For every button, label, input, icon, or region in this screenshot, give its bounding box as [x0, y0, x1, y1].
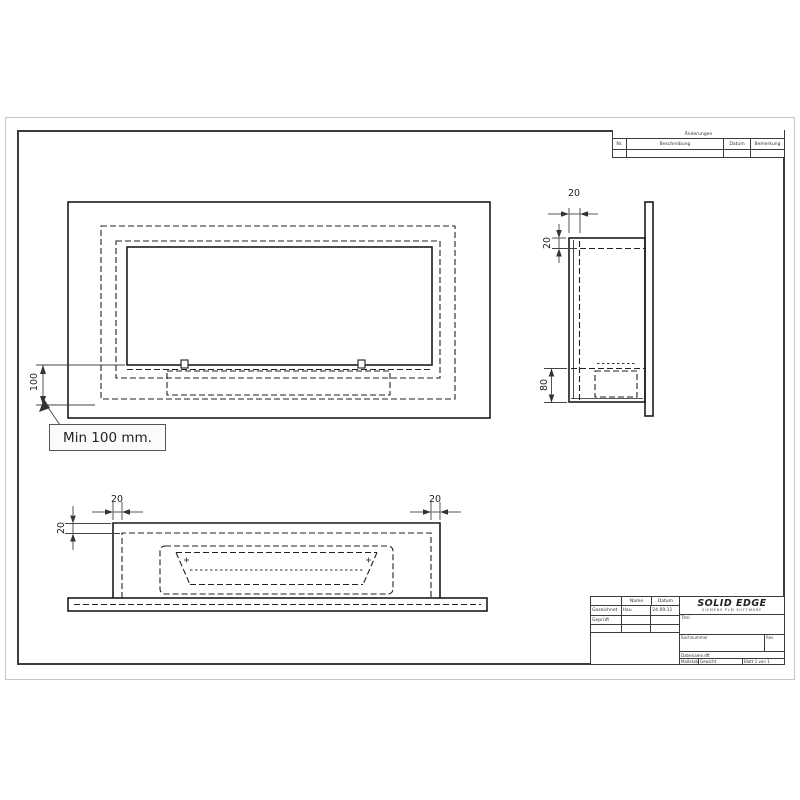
rev-col-nr: Nr.: [613, 139, 627, 149]
title-block-main: SOLID EDGE SIEMENS PLM SOFTWARE Titel Sa…: [680, 597, 784, 664]
front-view: [68, 202, 490, 418]
tb-rev-label: Rev: [766, 635, 773, 640]
dim-label-side-80: 80: [535, 380, 555, 390]
drawing-page: 100 20 20 80 20 20 20 Min 100 mm. Änderu…: [0, 0, 800, 800]
dim-label-bottom-depth-20: 20: [52, 523, 72, 533]
bottom-view: [68, 523, 487, 611]
dim-label-side-top-20: 20: [564, 189, 584, 199]
revision-table-header: Änderungen: [613, 130, 784, 139]
rev-col-remark: Bemerkung: [751, 139, 784, 149]
title-block: Name Datum Gezeichnet Hau 24.09.11 Geprü…: [590, 596, 784, 664]
rev-col-date: Datum: [724, 139, 751, 149]
dim-label-front-100: 100: [25, 377, 45, 387]
tb-weight-label: Gewicht: [699, 659, 743, 664]
title-block-signatures: Name Datum Gezeichnet Hau 24.09.11 Geprü…: [591, 597, 680, 664]
tb-drawn-label: Gezeichnet: [591, 606, 622, 615]
dim-bottom-depth-20: [65, 506, 120, 550]
tb-drawn-name: Hau: [622, 606, 652, 615]
burner-center-marks: [184, 558, 371, 563]
tb-scale-label: Maßstab: [680, 659, 699, 664]
dim-front-100: [36, 365, 125, 405]
drawing-canvas: [0, 0, 800, 800]
tb-filename: Dateiname.dft: [680, 652, 784, 659]
tb-docnum-label: Sachnummer: [681, 635, 708, 640]
min-distance-note: Min 100 mm.: [49, 424, 166, 451]
tb-col-date: Datum: [652, 597, 679, 605]
tb-title-label: Titel: [681, 615, 690, 620]
dim-label-bottom-right-20: 20: [425, 495, 445, 505]
tb-checked-label: Geprüft: [591, 616, 622, 624]
tb-bottom-row: Maßstab Gewicht Blatt 1 von 1: [680, 659, 784, 664]
revision-table: Änderungen Nr. Beschreibung Datum Bemerk…: [612, 130, 785, 158]
dim-label-side-left-20: 20: [538, 238, 558, 248]
tb-docnum-field: Sachnummer Rev: [680, 635, 784, 652]
glass-clip-right: [358, 360, 365, 368]
dim-label-bottom-left-20: 20: [107, 495, 127, 505]
glass-clip-left: [181, 360, 188, 368]
tb-title-field: Titel: [680, 615, 784, 635]
tb-drawn-date: 24.09.11: [651, 606, 679, 615]
dim-side-top-20: [548, 208, 598, 233]
rev-col-description: Beschreibung: [627, 139, 724, 149]
side-view: [569, 202, 653, 416]
solid-edge-logo: SOLID EDGE SIEMENS PLM SOFTWARE: [680, 597, 784, 615]
tb-col-name: Name: [622, 597, 651, 605]
note-leader: [39, 399, 60, 425]
tb-sheet-label: Blatt 1 von 1: [743, 659, 784, 664]
